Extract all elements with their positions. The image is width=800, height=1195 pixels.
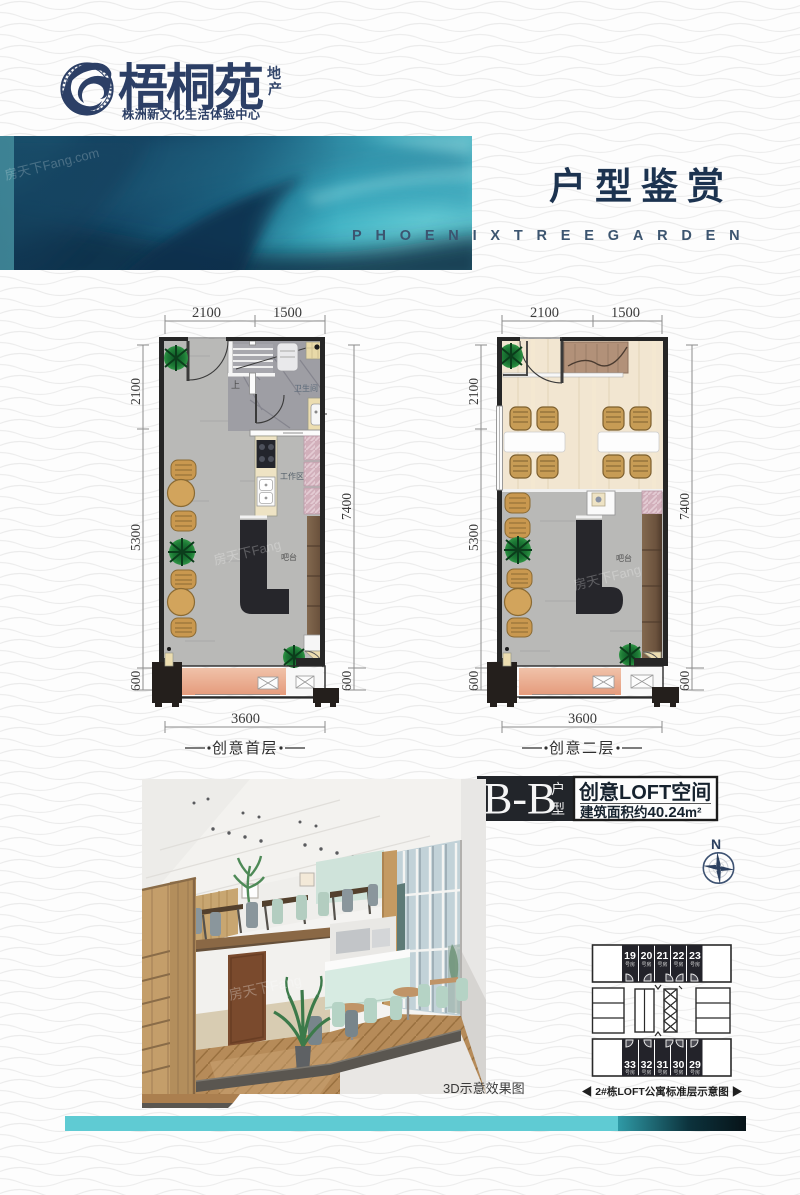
svg-text:工作区: 工作区 — [280, 471, 304, 481]
svg-text:7400: 7400 — [339, 493, 354, 520]
svg-text:创意二层: 创意二层 — [549, 739, 615, 757]
svg-text:号房: 号房 — [690, 1069, 700, 1076]
svg-text:21: 21 — [657, 950, 669, 962]
svg-text:◀ 2#栋LOFT公寓标准层示意图 ▶: ◀ 2#栋LOFT公寓标准层示意图 ▶ — [582, 1085, 743, 1098]
svg-text:5300: 5300 — [466, 524, 481, 551]
svg-text:号房: 号房 — [641, 961, 651, 968]
svg-text:22: 22 — [673, 950, 685, 962]
svg-text:户: 户 — [551, 781, 565, 797]
svg-text:株洲新文化生活体验中心: 株洲新文化生活体验中心 — [122, 107, 261, 122]
svg-text:3600: 3600 — [568, 711, 597, 727]
svg-text:号房: 号房 — [625, 1069, 635, 1076]
svg-text:600: 600 — [128, 671, 143, 692]
svg-text:600: 600 — [339, 671, 354, 692]
svg-text:号房: 号房 — [625, 961, 635, 968]
svg-text:3600: 3600 — [231, 711, 260, 727]
svg-text:地: 地 — [267, 65, 281, 82]
svg-text:2100: 2100 — [192, 305, 221, 321]
svg-text:1500: 1500 — [273, 305, 302, 321]
svg-text:上: 上 — [231, 380, 240, 390]
svg-text:吧台: 吧台 — [281, 552, 297, 562]
svg-text:20: 20 — [641, 950, 653, 962]
svg-text:型: 型 — [551, 801, 565, 817]
svg-text:N: N — [711, 836, 721, 852]
svg-text:600: 600 — [677, 671, 692, 692]
svg-text:号房: 号房 — [673, 1069, 683, 1076]
svg-text:19: 19 — [624, 950, 636, 962]
svg-text:吧台: 吧台 — [616, 553, 632, 563]
svg-text:PHOENIXTREEGARDEN: PHOENIXTREEGARDEN — [352, 228, 753, 244]
svg-text:号房: 号房 — [657, 961, 667, 968]
svg-text:卫生间: 卫生间 — [294, 383, 318, 393]
svg-text:建筑面积约40.24m²: 建筑面积约40.24m² — [579, 804, 702, 821]
svg-text:600: 600 — [466, 671, 481, 692]
svg-text:产: 产 — [268, 81, 282, 98]
svg-text:号房: 号房 — [641, 1069, 651, 1076]
svg-text:创意首层: 创意首层 — [212, 739, 278, 757]
svg-text:户型鉴赏: 户型鉴赏 — [549, 166, 733, 207]
svg-text:B-B: B-B — [483, 774, 556, 823]
svg-text:2100: 2100 — [466, 378, 481, 405]
svg-text:创意LOFT空间: 创意LOFT空间 — [578, 780, 711, 804]
svg-text:2100: 2100 — [128, 378, 143, 405]
svg-text:2100: 2100 — [530, 305, 559, 321]
svg-text:号房: 号房 — [690, 961, 700, 968]
svg-text:5300: 5300 — [128, 524, 143, 551]
svg-text:23: 23 — [689, 950, 701, 962]
svg-text:1500: 1500 — [611, 305, 640, 321]
svg-text:7400: 7400 — [677, 493, 692, 520]
svg-text:号房: 号房 — [673, 961, 683, 968]
svg-text:号房: 号房 — [657, 1069, 667, 1076]
svg-text:3D示意效果图: 3D示意效果图 — [443, 1081, 525, 1096]
